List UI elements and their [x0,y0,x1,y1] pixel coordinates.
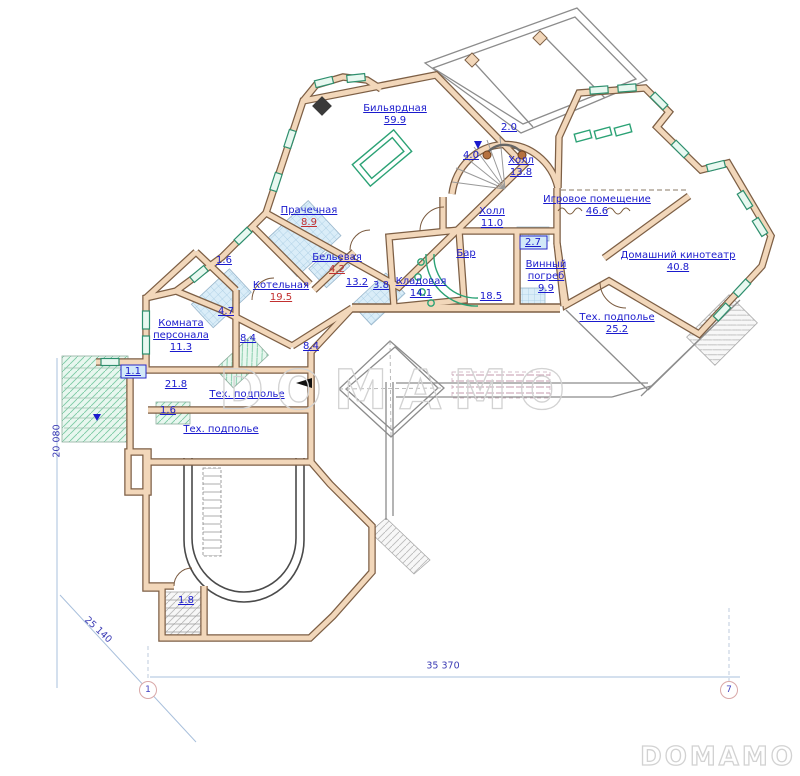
room-label-linen-room: Бельевая4.2 [312,252,362,276]
room-label-staff-room: Комната персонала11.3 [140,318,222,354]
dimension-bottom: 35 370 [426,661,459,672]
measurement-18-5: 18.5 [480,291,502,302]
walls-core [96,75,771,638]
measurement-1-6-a: 1.6 [216,255,232,266]
measurement-2-0: 2.0 [501,122,517,133]
room-label-home-theater: Домашний кинотеатр40.8 [621,250,736,274]
room-label-wine-cellar: Винный погреб9.9 [516,259,576,295]
measurement-3-8: 3.8 [373,280,389,291]
room-label-bar: Бар [456,248,475,260]
room-label-laundry: Прачечная8.9 [281,205,338,229]
measurement-1-6-b: 1.6 [160,405,176,416]
axis-marker-7: 7 [720,681,738,699]
dimension-left: 20 080 [52,424,63,457]
measurement-8-4-b: 8.4 [303,341,319,352]
room-label-storage: Кладовая14.1 [396,276,447,300]
watermark-corner: DOMAMO [640,742,796,772]
measurement-4-7: 4.7 [218,306,234,317]
thin-structures [184,300,740,602]
measurement-8-4-a: 8.4 [240,333,256,344]
measurement-13-2: 13.2 [346,277,368,288]
watermark-center: DOMAMO [219,359,577,422]
room-label-billiard: Бильярдная59.9 [363,103,427,127]
room-label-boiler-room: Котельная19.5 [253,280,309,304]
room-label-hall-lower: Холл11.0 [479,206,505,230]
measurement-2-7: 2.7 [525,237,541,248]
measurement-1-1: 1.1 [125,366,141,377]
room-label-hall-upper: Холл13.8 [508,155,534,179]
walls-edge [96,75,771,638]
axis-marker-1: 1 [139,681,157,699]
measurement-4-0: 4.0 [463,150,479,161]
terrace-outline [425,8,647,133]
room-label-game-room: Игровое помещение46.6 [543,194,651,218]
floor-plan-page: Бильярдная59.9 Холл13.8 Игровое помещени… [0,0,800,776]
billiard-table [352,130,411,186]
measurement-1-8: 1.8 [178,595,194,606]
room-label-tech-subfloor-3: Тех. подполье [183,424,258,436]
measurement-21-8: 21.8 [165,379,187,390]
room-label-tech-subfloor-1: Тех. подполье25.2 [579,312,654,336]
gym-equipment [574,124,632,142]
